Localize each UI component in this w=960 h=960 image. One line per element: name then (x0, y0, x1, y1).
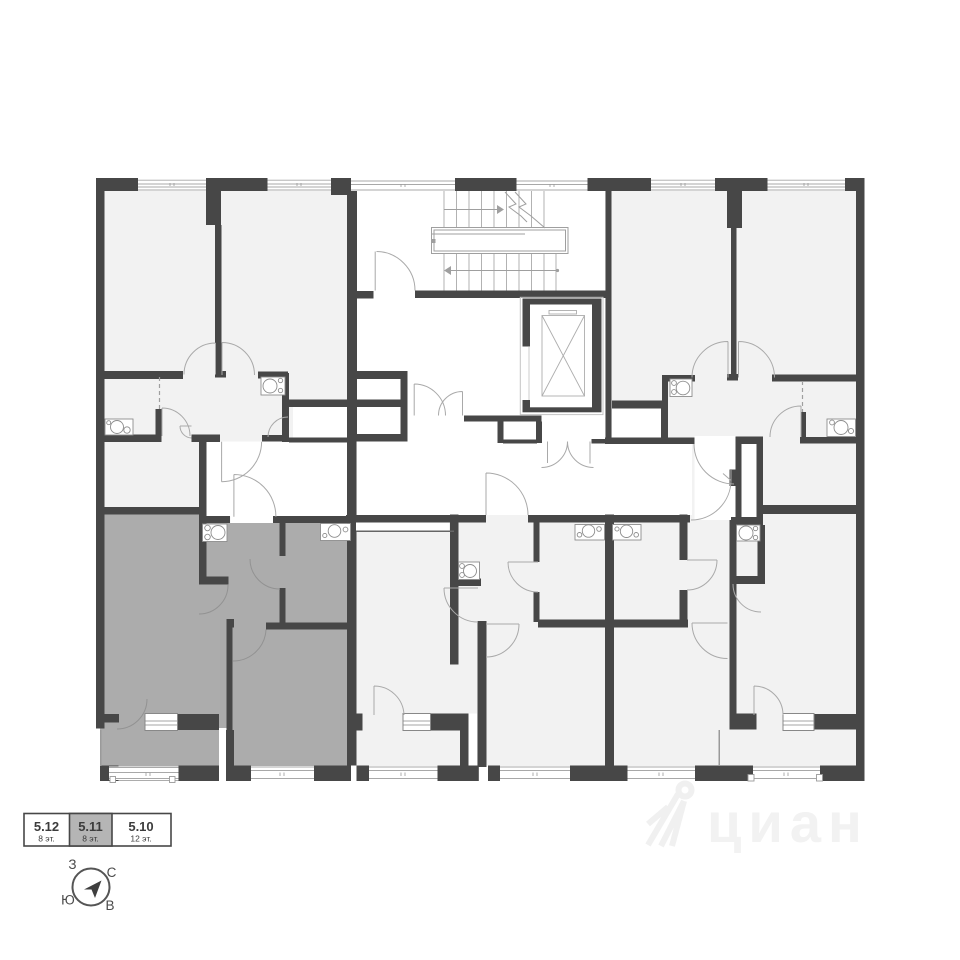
svg-text:С: С (107, 865, 117, 880)
svg-text:5.12: 5.12 (34, 819, 59, 834)
svg-text:5.10: 5.10 (128, 819, 153, 834)
svg-text:В: В (105, 898, 114, 913)
svg-text:Ю: Ю (61, 893, 75, 908)
svg-text:8 эт.: 8 эт. (38, 834, 55, 844)
svg-text:5.11: 5.11 (78, 819, 103, 834)
svg-text:12 эт.: 12 эт. (130, 834, 151, 844)
svg-text:8 эт.: 8 эт. (82, 834, 99, 844)
svg-text:циан: циан (707, 791, 869, 854)
svg-text:З: З (68, 857, 76, 872)
